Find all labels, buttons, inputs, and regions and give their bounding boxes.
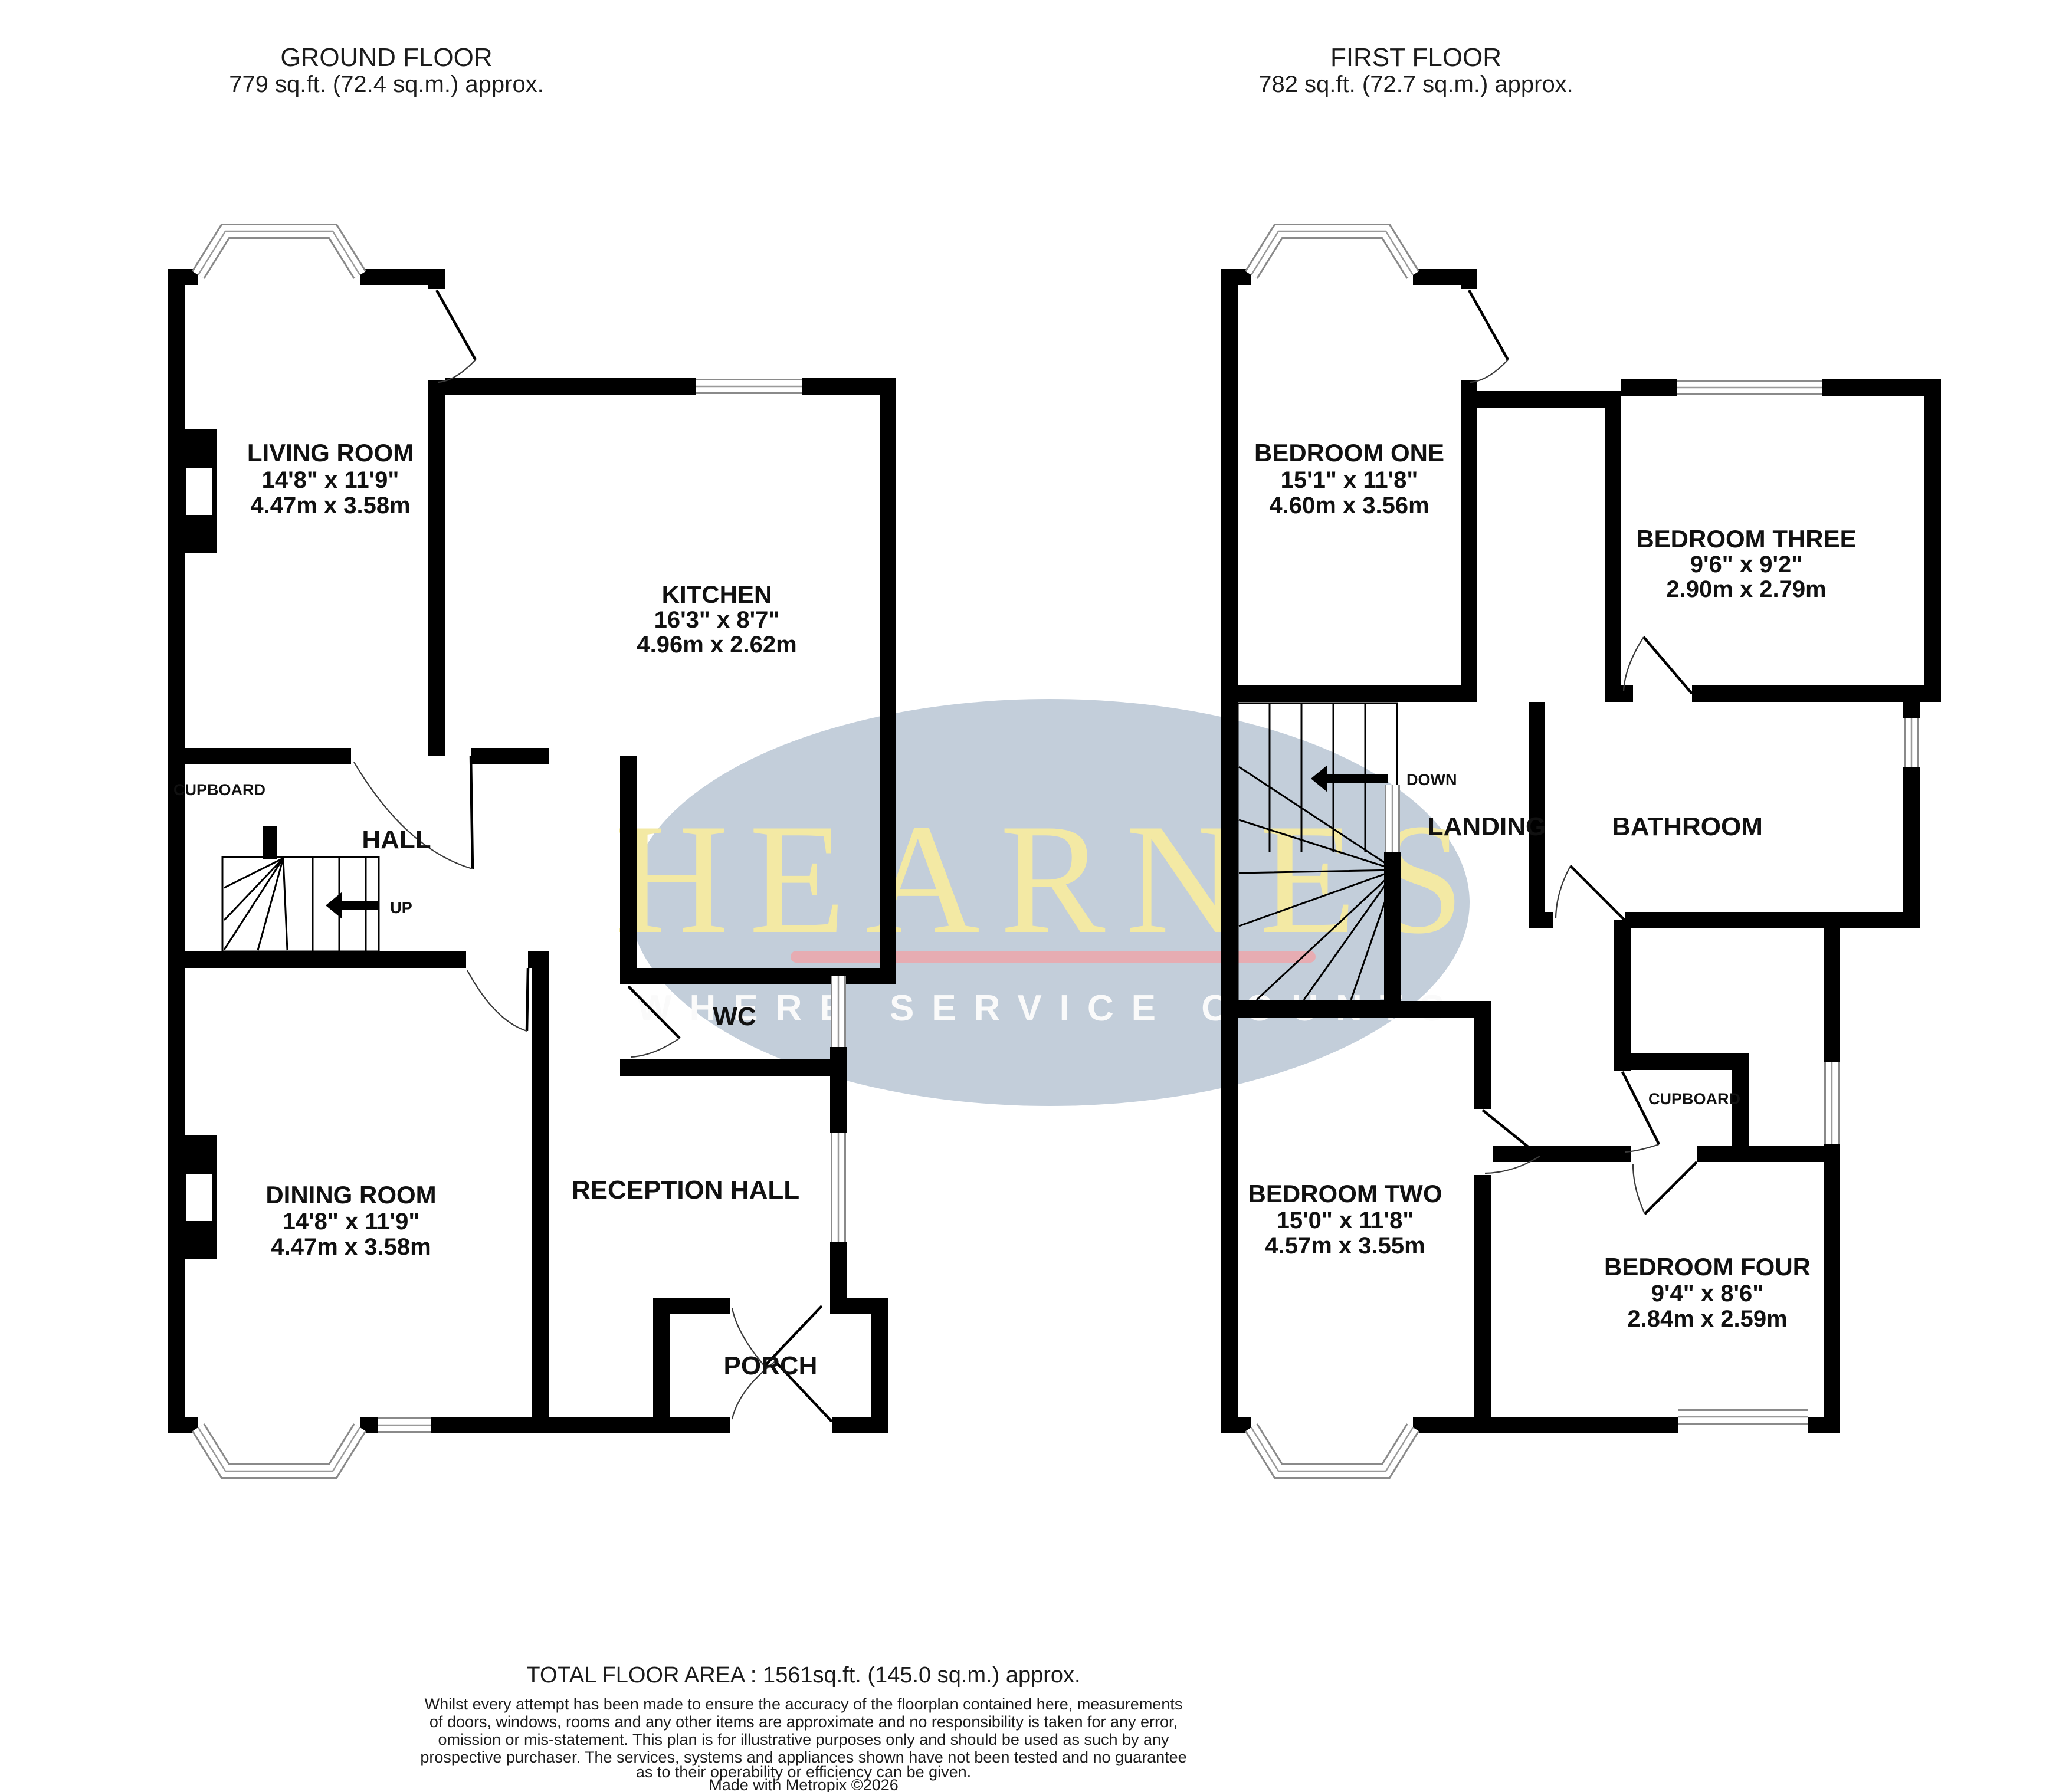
- floorplan: HEARNES WHERE SERVICE COUNTS: [0, 0, 2069, 1792]
- room-label-landing: LANDING: [1428, 812, 1546, 841]
- room-label-bedroom-three: BEDROOM THREE: [1636, 525, 1856, 553]
- ground-floor-title: GROUND FLOOR: [280, 43, 492, 72]
- room-label-bedroom-two: BEDROOM TWO: [1248, 1180, 1442, 1207]
- room-label-wc: WC: [713, 1002, 756, 1031]
- room-label-hall: HALL: [362, 825, 431, 854]
- ground-floor-area: 779 sq.ft. (72.4 sq.m.) approx.: [229, 71, 544, 97]
- disclaimer-line-1: Whilst every attempt has been made to en…: [425, 1695, 1183, 1713]
- room-dim-dining-imperial: 14'8" x 11'9": [283, 1209, 420, 1235]
- room-dim-bedroom-three-imperial: 9'6" x 9'2": [1690, 552, 1802, 577]
- stairs-up-label: UP: [390, 899, 412, 917]
- room-dim-bedroom-four-metric: 2.84m x 2.59m: [1627, 1306, 1787, 1332]
- stairs-down-label: DOWN: [1406, 771, 1457, 789]
- room-label-cupboard-ground: CUPBOARD: [173, 781, 265, 799]
- watermark-brand: HEARNES: [615, 791, 1484, 966]
- footer: TOTAL FLOOR AREA : 1561sq.ft. (145.0 sq.…: [420, 1663, 1186, 1792]
- headers: GROUND FLOOR 779 sq.ft. (72.4 sq.m.) app…: [229, 43, 1573, 97]
- room-dim-bedroom-one-imperial: 15'1" x 11'8": [1281, 467, 1418, 493]
- room-label-kitchen: KITCHEN: [662, 580, 772, 608]
- room-dim-kitchen-metric: 4.96m x 2.62m: [637, 632, 796, 658]
- room-dim-kitchen-imperial: 16'3" x 8'7": [654, 607, 780, 633]
- room-label-reception-hall: RECEPTION HALL: [572, 1176, 799, 1204]
- room-dim-bedroom-one-metric: 4.60m x 3.56m: [1269, 493, 1429, 518]
- room-label-porch: PORCH: [724, 1351, 818, 1380]
- room-label-bathroom: BATHROOM: [1612, 812, 1763, 841]
- room-dim-living-metric: 4.47m x 3.58m: [250, 493, 410, 518]
- ground-chimney-notches: [186, 468, 212, 1221]
- first-floor-area: 782 sq.ft. (72.7 sq.m.) approx.: [1258, 71, 1573, 97]
- disclaimer-line-2: of doors, windows, rooms and any other i…: [429, 1713, 1178, 1731]
- room-dim-bedroom-three-metric: 2.90m x 2.79m: [1666, 576, 1826, 602]
- total-floor-area: TOTAL FLOOR AREA : 1561sq.ft. (145.0 sq.…: [526, 1663, 1080, 1688]
- first-floor-title: FIRST FLOOR: [1330, 43, 1501, 72]
- watermark: HEARNES WHERE SERVICE COUNTS: [615, 699, 1484, 1106]
- room-label-bedroom-one: BEDROOM ONE: [1254, 439, 1444, 467]
- room-dim-bedroom-two-metric: 4.57m x 3.55m: [1265, 1233, 1425, 1259]
- room-label-cupboard-first: CUPBOARD: [1648, 1090, 1740, 1108]
- room-dim-dining-metric: 4.47m x 3.58m: [271, 1234, 431, 1260]
- room-dim-living-imperial: 14'8" x 11'9": [262, 467, 399, 493]
- room-dim-bedroom-four-imperial: 9'4" x 8'6": [1651, 1281, 1763, 1307]
- room-label-dining-room: DINING ROOM: [265, 1181, 436, 1209]
- room-dim-bedroom-two-imperial: 15'0" x 11'8": [1277, 1207, 1414, 1233]
- room-label-living-room: LIVING ROOM: [247, 439, 414, 467]
- up-arrow-icon: [326, 892, 378, 919]
- ground-stairs: [222, 857, 379, 951]
- room-label-bedroom-four: BEDROOM FOUR: [1604, 1253, 1811, 1281]
- metropix-credit: Made with Metropix ©2026: [709, 1776, 899, 1792]
- disclaimer-line-3: omission or mis-statement. This plan is …: [438, 1731, 1169, 1748]
